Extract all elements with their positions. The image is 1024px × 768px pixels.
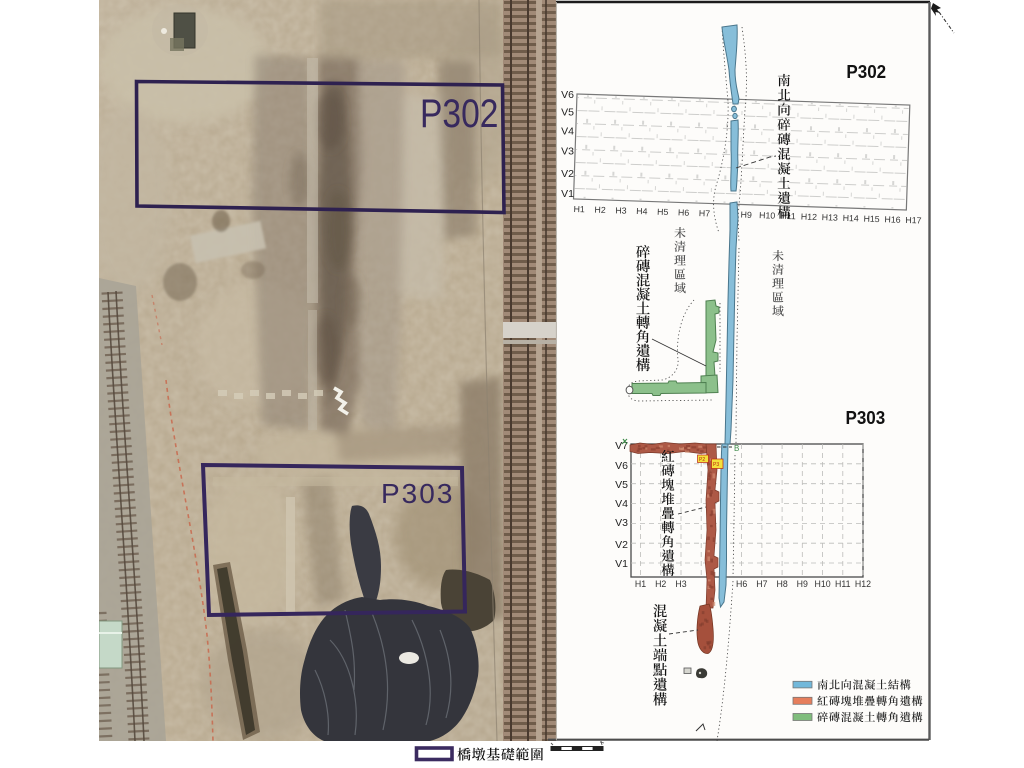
svg-text:P2: P2	[699, 457, 705, 463]
svg-text:H12: H12	[801, 211, 818, 222]
svg-text:H14: H14	[843, 213, 860, 224]
svg-text:B: B	[734, 444, 739, 453]
svg-text:H8: H8	[776, 579, 787, 589]
svg-text:H13: H13	[822, 212, 839, 223]
svg-text:H6: H6	[736, 579, 747, 589]
svg-text:H7: H7	[756, 579, 767, 589]
svg-text:H9: H9	[797, 579, 808, 589]
svg-text:V4: V4	[615, 498, 628, 510]
svg-text:H16: H16	[884, 214, 901, 225]
svg-text:H10: H10	[815, 579, 831, 589]
svg-text:H6: H6	[678, 207, 690, 217]
svg-text:V7: V7	[615, 440, 628, 452]
svg-text:V2: V2	[561, 168, 574, 180]
svg-text:V5: V5	[615, 479, 628, 491]
svg-text:P302: P302	[846, 61, 886, 82]
svg-text:H3: H3	[615, 205, 627, 215]
svg-text:H2: H2	[594, 205, 606, 215]
svg-text:V4: V4	[561, 126, 574, 138]
svg-text:V2: V2	[615, 539, 628, 551]
svg-text:H17: H17	[905, 215, 922, 226]
svg-text:V5: V5	[561, 107, 574, 119]
svg-text:H1: H1	[635, 579, 646, 589]
svg-text:H10: H10	[759, 210, 776, 221]
svg-text:H1: H1	[573, 204, 585, 214]
svg-text:V3: V3	[561, 146, 574, 158]
svg-text:V1: V1	[615, 558, 628, 570]
svg-text:P303: P303	[381, 478, 454, 509]
svg-text:H5: H5	[657, 207, 669, 217]
svg-text:H7: H7	[699, 208, 711, 218]
svg-text:V3: V3	[615, 517, 628, 529]
svg-text:V6: V6	[561, 89, 574, 101]
svg-text:P302: P302	[420, 91, 498, 135]
svg-text:H3: H3	[675, 579, 686, 589]
svg-text:H2: H2	[655, 579, 666, 589]
svg-text:H12: H12	[855, 579, 871, 589]
svg-text:H4: H4	[636, 206, 648, 216]
svg-text:H9: H9	[741, 209, 753, 219]
svg-text:P303: P303	[845, 407, 885, 428]
svg-text:H11: H11	[835, 579, 851, 589]
svg-text:V6: V6	[615, 460, 628, 472]
svg-text:P3: P3	[713, 462, 719, 468]
svg-text:V1: V1	[561, 188, 574, 200]
svg-text:H15: H15	[863, 214, 880, 225]
